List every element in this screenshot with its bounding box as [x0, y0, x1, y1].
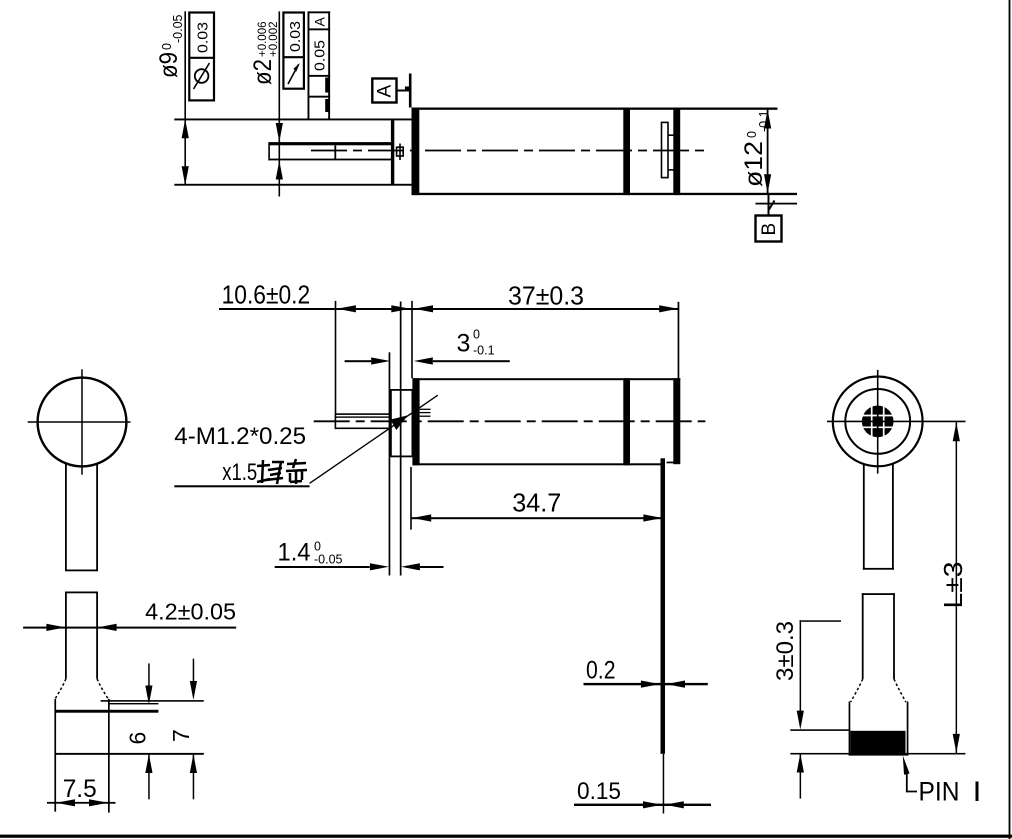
svg-text:x1.5: x1.5: [222, 459, 257, 486]
svg-text:0.2: 0.2: [586, 657, 616, 685]
svg-text:B: B: [759, 223, 780, 236]
svg-text:PIN: PIN: [919, 777, 960, 807]
svg-text:10.6±0.2: 10.6±0.2: [222, 280, 311, 310]
svg-text:7.5: 7.5: [63, 775, 97, 803]
svg-text:0.05: 0.05: [313, 40, 329, 71]
svg-text:-0.1: -0.1: [473, 344, 495, 358]
svg-text:0: 0: [314, 540, 321, 554]
svg-text:A: A: [375, 85, 396, 98]
svg-text:ø9: ø9: [155, 52, 183, 78]
svg-text:-0.05: -0.05: [171, 14, 185, 43]
svg-text:4-M1.2*0.25: 4-M1.2*0.25: [174, 423, 306, 450]
svg-text:37±0.3: 37±0.3: [508, 281, 584, 311]
svg-text:-0.05: -0.05: [314, 553, 343, 567]
svg-text:4.2±0.05: 4.2±0.05: [145, 599, 236, 625]
svg-text:A: A: [312, 17, 328, 27]
svg-text:0.03: 0.03: [288, 21, 304, 52]
svg-text:1.4: 1.4: [278, 539, 311, 567]
svg-text:0: 0: [160, 43, 174, 50]
svg-text:+0.002: +0.002: [268, 22, 280, 58]
svg-text:-0.1: -0.1: [757, 110, 771, 132]
svg-text:6: 6: [125, 732, 151, 745]
svg-text:ø2: ø2: [249, 59, 277, 85]
svg-text:7: 7: [168, 729, 194, 742]
svg-text:0.03: 0.03: [196, 22, 212, 53]
svg-text:0: 0: [473, 328, 480, 342]
svg-text:0.15: 0.15: [577, 778, 621, 805]
svg-text:ø12: ø12: [740, 141, 768, 187]
svg-text:34.7: 34.7: [512, 488, 561, 518]
svg-text:3: 3: [457, 330, 471, 358]
svg-text:3±0.3: 3±0.3: [772, 621, 799, 681]
svg-text:L±3: L±3: [938, 562, 968, 609]
